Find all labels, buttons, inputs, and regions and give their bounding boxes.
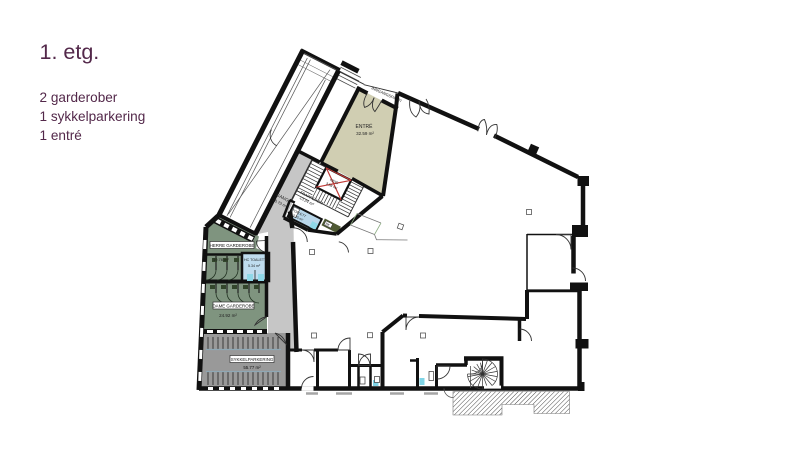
svg-text:32.59 m²: 32.59 m² <box>356 131 374 136</box>
svg-text:HERRE GARDEROBE: HERRE GARDEROBE <box>210 243 255 248</box>
svg-text:55.77 m²: 55.77 m² <box>243 365 261 370</box>
svg-text:HC TOALETT: HC TOALETT <box>244 258 267 262</box>
svg-text:24.92 m²: 24.92 m² <box>219 313 237 318</box>
svg-text:SYKKELPARKERING: SYKKELPARKERING <box>231 357 274 362</box>
svg-text:DAME GARDEROBE: DAME GARDEROBE <box>213 304 255 309</box>
svg-text:5.34 m²: 5.34 m² <box>248 264 261 268</box>
svg-text:ENTRÉ: ENTRÉ <box>356 123 374 130</box>
svg-text:19.76 m²: 19.76 m² <box>213 257 229 262</box>
